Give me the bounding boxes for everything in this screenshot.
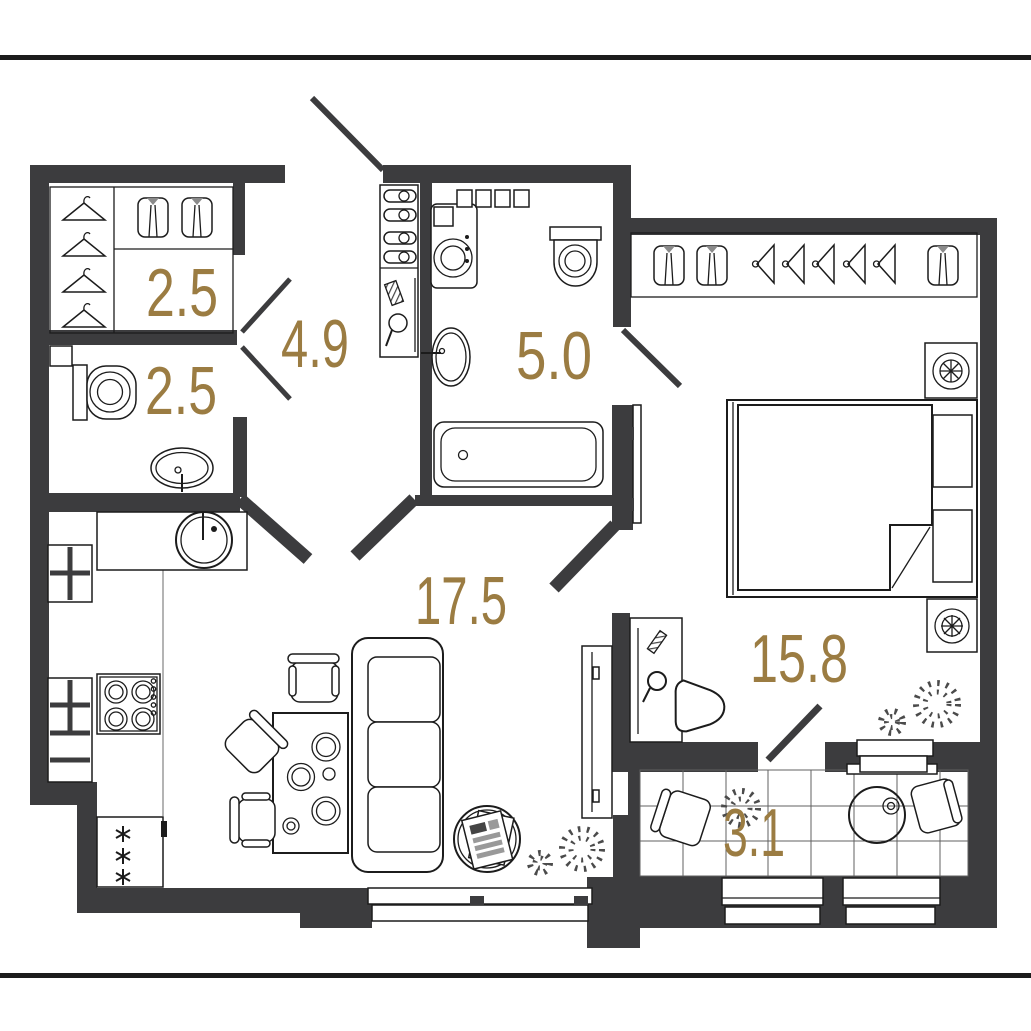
shirt-icon [697, 246, 727, 285]
shirt-icon [928, 246, 958, 285]
living-area-label: 17.5 [415, 563, 507, 639]
planter-boxes [847, 740, 937, 774]
stove [97, 674, 160, 734]
duct [50, 346, 72, 366]
kitchen-sink [97, 512, 247, 570]
bathroom-area-label: 5.0 [516, 318, 592, 394]
living-window-sill [372, 905, 588, 921]
chair [288, 654, 339, 702]
desk [630, 618, 682, 742]
hallway-area-label: 4.9 [281, 306, 349, 382]
wc-area-label: 2.5 [145, 353, 217, 429]
fridge [97, 817, 167, 887]
shirt-icon [182, 198, 212, 237]
balcony-area-label: 3.1 [723, 795, 785, 871]
dressing-area-label: 2.5 [146, 255, 218, 331]
chair [230, 793, 275, 847]
bedside-table [925, 343, 977, 398]
toilet-bowl [87, 366, 136, 419]
sofa [352, 638, 443, 872]
balcony-window-sill [846, 907, 935, 924]
dining-table [273, 713, 348, 853]
floor-plan-drawing: 2.5 4.9 2.5 5.0 17.5 15.8 3.1 [0, 0, 1031, 1031]
pillow [933, 510, 972, 582]
balcony-window-sill [725, 907, 820, 924]
toilet-tank [73, 365, 87, 420]
top-separator-line [0, 55, 1031, 60]
washing-machine [431, 204, 477, 288]
hallway-shelves [380, 185, 418, 357]
floor-plan-page: 2.5 4.9 2.5 5.0 17.5 15.8 3.1 [0, 0, 1031, 1031]
bottom-separator-line [0, 973, 1031, 978]
balcony-window [722, 878, 823, 905]
shirt-icon [654, 246, 684, 285]
bed [727, 400, 977, 597]
balcony-window [843, 878, 940, 905]
pillow [933, 415, 972, 487]
bedside-table [927, 599, 977, 652]
bathtub [434, 422, 603, 487]
bedroom-area-label: 15.8 [750, 621, 848, 697]
tv-unit [582, 646, 612, 818]
shirt-icon [138, 198, 168, 237]
